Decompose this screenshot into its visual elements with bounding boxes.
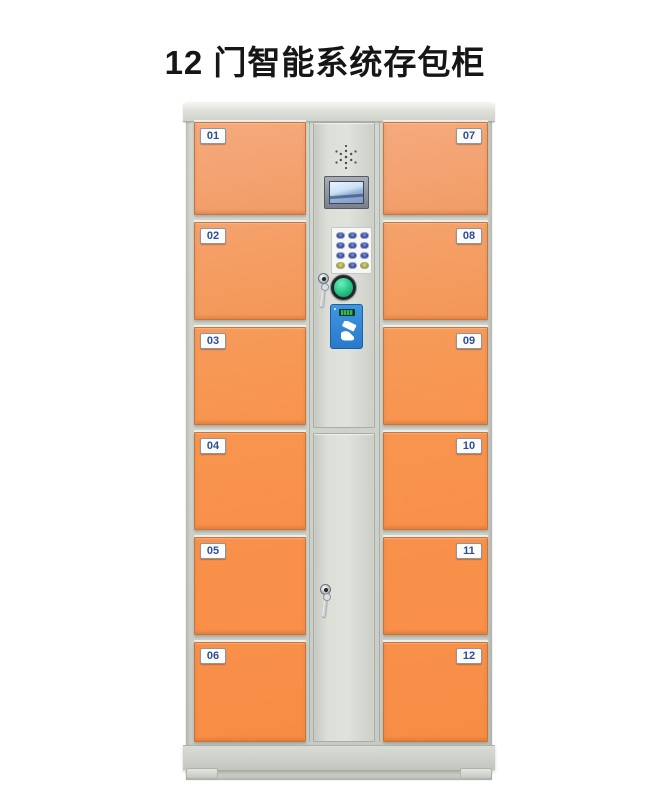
keypad-key [336,242,345,249]
cabinet-base [183,745,495,770]
locker-door-07: 07 [383,122,488,215]
door-number-label: 03 [200,333,226,349]
door-number-label: 09 [456,333,482,349]
door-number-label: 06 [200,648,226,664]
keypad-key [348,262,357,269]
door-number-label: 10 [456,438,482,454]
speaker-icon [332,143,360,171]
lcd-screen [329,181,364,204]
locker-cabinet: 01 02 03 04 05 06 [186,103,492,780]
keypad-key [336,232,345,239]
hanging-key-icon [320,287,326,307]
locker-door-06: 06 [194,642,306,742]
lcd-display [324,176,369,209]
confirm-button [331,275,356,300]
locker-door-12: 12 [383,642,488,742]
locker-door-03: 03 [194,327,306,425]
cabinet-top-rail [183,103,495,122]
locker-door-08: 08 [383,222,488,320]
locker-door-10: 10 [383,432,488,530]
hanging-key-icon [322,597,328,617]
keypad-key [348,232,357,239]
control-panel [313,122,375,428]
door-number-label: 05 [200,543,226,559]
cabinet-seam-left [309,122,310,742]
keypad-key [360,232,369,239]
door-number-label: 11 [456,543,482,559]
keypad-key [360,262,369,269]
locker-door-05: 05 [194,537,306,635]
keypad-key [348,242,357,249]
product-title: 12 门智能系统存包柜 [0,36,650,84]
door-column-left: 01 02 03 04 05 06 [194,122,306,742]
locker-door-04: 04 [194,432,306,530]
cabinet-foot-left [186,768,218,779]
locker-door-09: 09 [383,327,488,425]
locker-door-01: 01 [194,122,306,215]
numeric-keypad [331,227,372,274]
door-number-label: 07 [456,128,482,144]
cabinet-seam-right [379,122,380,742]
card-reader [330,304,363,349]
door-number-label: 01 [200,128,226,144]
keypad-key [336,262,345,269]
door-number-label: 08 [456,228,482,244]
door-number-label: 04 [200,438,226,454]
keypad-key [336,252,345,259]
center-lower-door [313,433,375,742]
swipe-card-icon [337,321,358,345]
keypad-key [360,252,369,259]
door-number-label: 12 [456,648,482,664]
reader-display [339,309,355,316]
cabinet-foot-right [460,768,492,779]
door-column-right: 07 08 09 10 11 12 [383,122,488,742]
reader-indicator-dot [334,308,336,310]
door-number-label: 02 [200,228,226,244]
keypad-key [348,252,357,259]
locker-door-02: 02 [194,222,306,320]
locker-door-11: 11 [383,537,488,635]
keypad-key [360,242,369,249]
